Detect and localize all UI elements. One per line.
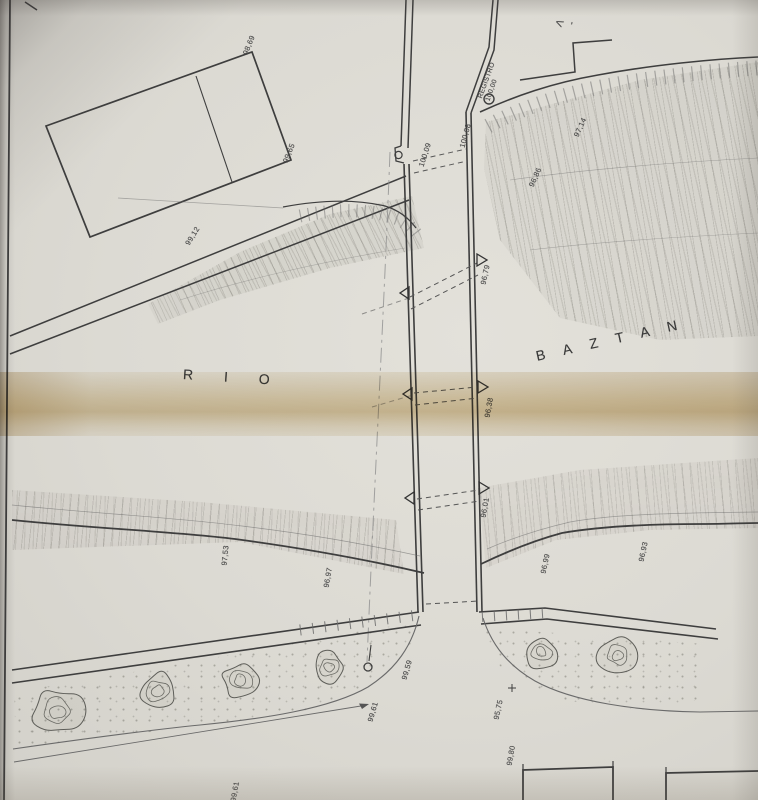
bush xyxy=(596,637,638,673)
spot-elevation-cross xyxy=(508,684,516,692)
building-outline xyxy=(523,767,613,800)
road-lower-left xyxy=(12,612,419,670)
bush-symbols xyxy=(32,637,638,731)
road-edge xyxy=(10,176,406,336)
leader-arrowhead xyxy=(359,704,369,710)
bush xyxy=(140,671,174,707)
frame-border-left xyxy=(4,0,10,800)
stepped-wall-top-right xyxy=(520,40,612,80)
boundary-line xyxy=(118,198,283,208)
plan-linework xyxy=(0,0,758,800)
road-lower-left xyxy=(12,625,421,683)
road-edge xyxy=(10,200,409,354)
building-upper-left xyxy=(46,52,291,237)
bank-lower-right xyxy=(481,523,758,564)
water-streak xyxy=(180,248,405,300)
water-edge-line xyxy=(12,505,420,556)
bank-hachure-left xyxy=(300,211,418,236)
channel-wall-right xyxy=(466,112,477,612)
channel-wall-right xyxy=(471,113,482,612)
building-outline xyxy=(666,771,758,800)
channel-centerline xyxy=(367,152,390,662)
road-lower-right xyxy=(481,619,718,639)
water-streak xyxy=(530,233,758,250)
survey-plan-photo: RIO BAZTAN REGISTRO 100,00 98,69 99,65 9… xyxy=(0,0,758,800)
upper-left-road xyxy=(10,176,418,354)
bottom-buildings xyxy=(523,761,758,800)
building-divider xyxy=(196,76,232,182)
channel-approach-left xyxy=(408,0,413,148)
bank-lower-left xyxy=(12,520,424,573)
bottom-roads xyxy=(12,608,758,762)
bush xyxy=(222,664,259,698)
post-circle xyxy=(364,663,372,671)
wall-cap-joints-right xyxy=(482,613,545,617)
channel-approach-left xyxy=(401,0,406,146)
water-streak xyxy=(510,158,758,180)
river-banks xyxy=(12,57,758,573)
bank-hachure-right xyxy=(488,68,757,126)
frame-corner-mark xyxy=(25,2,37,10)
post-stem xyxy=(369,645,371,661)
building-outline xyxy=(46,52,291,237)
road-lower-right xyxy=(479,608,716,629)
